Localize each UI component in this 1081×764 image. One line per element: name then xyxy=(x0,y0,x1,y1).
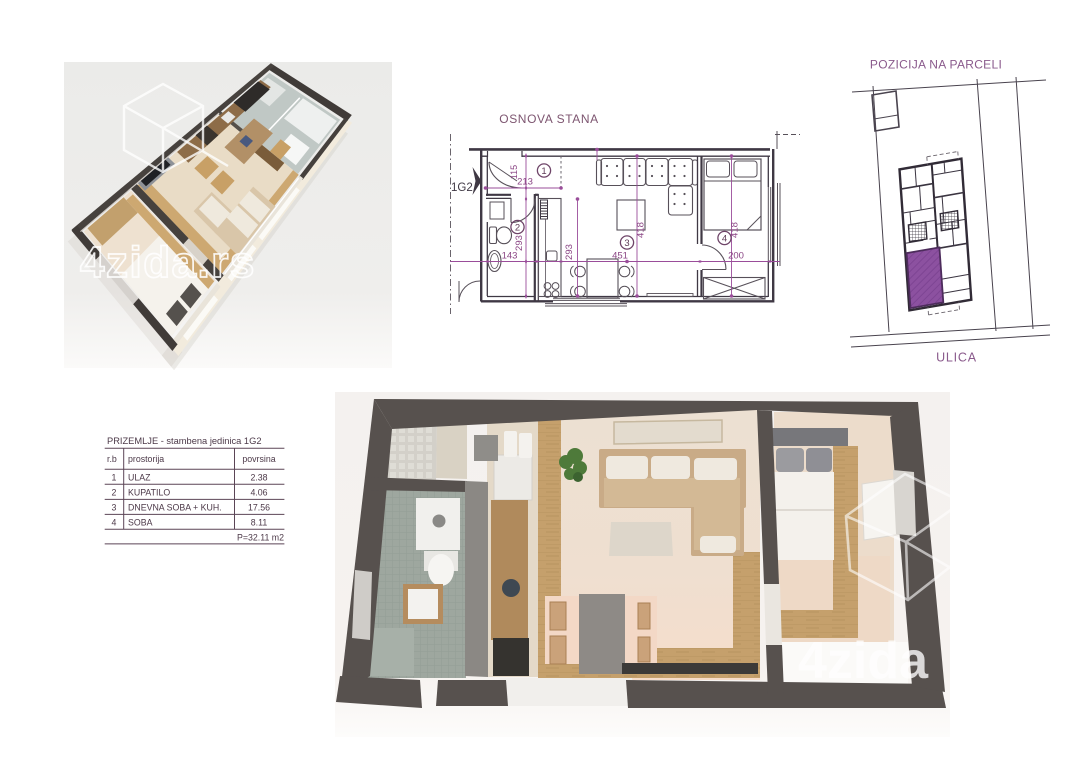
svg-text:4zida: 4zida xyxy=(798,632,929,690)
svg-text:ULAZ: ULAZ xyxy=(128,473,151,483)
svg-text:1G2: 1G2 xyxy=(451,182,473,194)
svg-text:293: 293 xyxy=(564,244,575,260)
svg-text:200: 200 xyxy=(728,251,744,262)
svg-text:8.11: 8.11 xyxy=(251,518,268,528)
svg-text:293: 293 xyxy=(514,235,525,251)
svg-text:143: 143 xyxy=(502,251,518,262)
svg-text:SOBA: SOBA xyxy=(128,518,153,528)
svg-text:2: 2 xyxy=(515,223,520,234)
svg-text:3: 3 xyxy=(624,238,629,249)
svg-text:PRIZEMLJE - stambena jedinica: PRIZEMLJE - stambena jedinica 1G2 xyxy=(107,436,262,446)
svg-text:4: 4 xyxy=(722,234,727,245)
svg-text:POZICIJA NA PARCELI: POZICIJA NA PARCELI xyxy=(870,58,1002,72)
svg-text:1: 1 xyxy=(112,473,117,483)
svg-text:2.38: 2.38 xyxy=(250,473,267,483)
svg-text:4zida.rs: 4zida.rs xyxy=(80,238,256,287)
svg-text:prostorija: prostorija xyxy=(128,454,164,464)
svg-text:3: 3 xyxy=(112,503,117,513)
svg-text:115: 115 xyxy=(509,165,519,179)
svg-text:povrsina: povrsina xyxy=(242,454,275,464)
svg-text:P=32.11 m2: P=32.11 m2 xyxy=(237,533,284,543)
svg-text:1: 1 xyxy=(541,166,546,177)
svg-text:ULICA: ULICA xyxy=(936,351,977,365)
svg-text:KUPATILO: KUPATILO xyxy=(128,488,170,498)
svg-text:213: 213 xyxy=(517,177,533,188)
svg-text:418: 418 xyxy=(636,222,647,238)
svg-text:4.06: 4.06 xyxy=(250,488,267,498)
svg-text:17.56: 17.56 xyxy=(248,503,270,513)
svg-text:DNEVNA SOBA + KUH.: DNEVNA SOBA + KUH. xyxy=(128,503,222,513)
svg-text:OSNOVA STANA: OSNOVA STANA xyxy=(499,112,598,126)
svg-text:451: 451 xyxy=(612,251,628,262)
svg-text:r.b: r.b xyxy=(107,454,117,464)
svg-text:2: 2 xyxy=(112,488,117,498)
svg-text:4: 4 xyxy=(112,518,117,528)
